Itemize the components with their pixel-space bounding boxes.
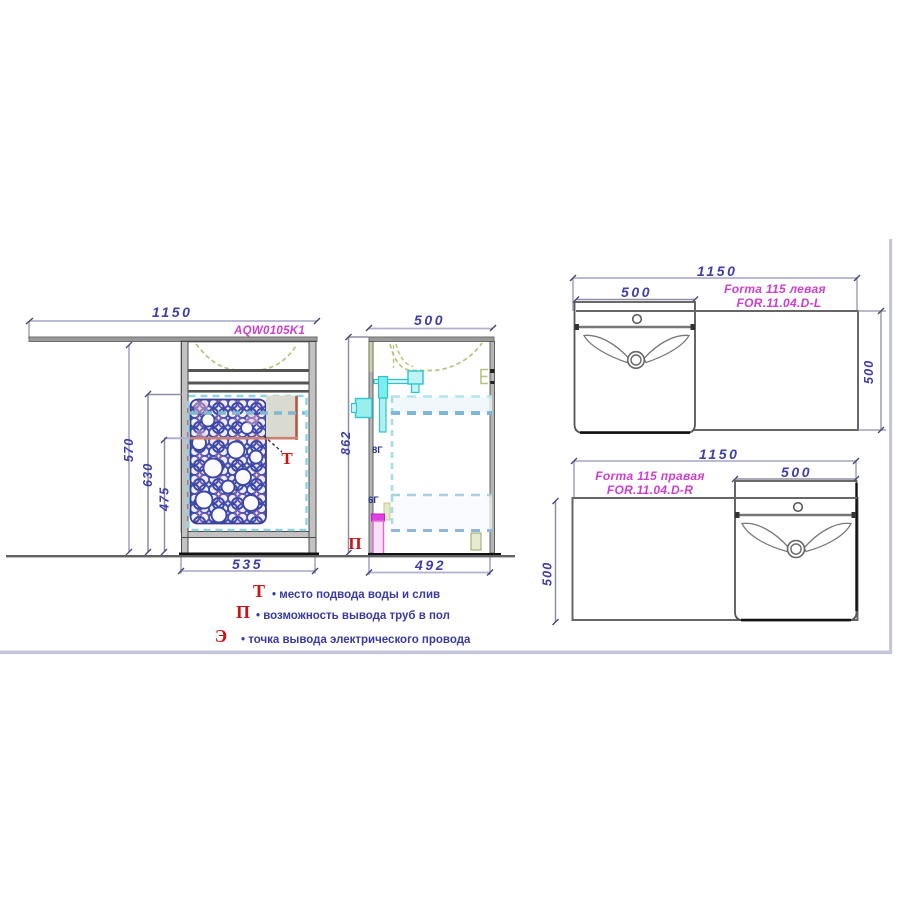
svg-text:500: 500 [621, 284, 652, 300]
svg-text:8Г: 8Г [372, 445, 383, 456]
svg-text:500: 500 [862, 360, 876, 384]
svg-text:AQW0105K1: AQW0105K1 [233, 325, 305, 337]
svg-text:П: П [348, 534, 361, 553]
svg-text:475: 475 [158, 487, 172, 512]
svg-text:492: 492 [414, 557, 446, 573]
svg-text:1150: 1150 [152, 304, 193, 320]
svg-text:500: 500 [541, 562, 555, 586]
svg-text:• возможность вывода труб в по: • возможность вывода труб в пол [256, 610, 450, 622]
svg-text:• место подвода воды и слив: • место подвода воды и слив [272, 589, 440, 601]
svg-text:570: 570 [122, 438, 136, 462]
svg-text:535: 535 [232, 556, 263, 572]
svg-text:1150: 1150 [697, 263, 738, 279]
svg-text:• точка вывода электрического: • точка вывода электрического провода [241, 634, 471, 646]
svg-text:Forma 115 правая: Forma 115 правая [595, 469, 704, 483]
svg-text:FOR.11.04.D-R: FOR.11.04.D-R [607, 483, 693, 497]
svg-text:500: 500 [414, 312, 445, 328]
svg-text:862: 862 [339, 431, 353, 455]
svg-text:П: П [236, 602, 250, 622]
svg-text:6Г: 6Г [368, 495, 379, 506]
svg-text:500: 500 [781, 464, 812, 480]
svg-text:Т: Т [281, 449, 293, 468]
svg-text:630: 630 [141, 463, 155, 487]
svg-text:Э: Э [215, 626, 227, 646]
svg-text:1150: 1150 [699, 446, 740, 462]
svg-text:Т: Т [253, 581, 265, 601]
svg-text:FOR.11.04.D-L: FOR.11.04.D-L [736, 296, 821, 310]
svg-text:Forma 115 левая: Forma 115 левая [724, 282, 826, 296]
